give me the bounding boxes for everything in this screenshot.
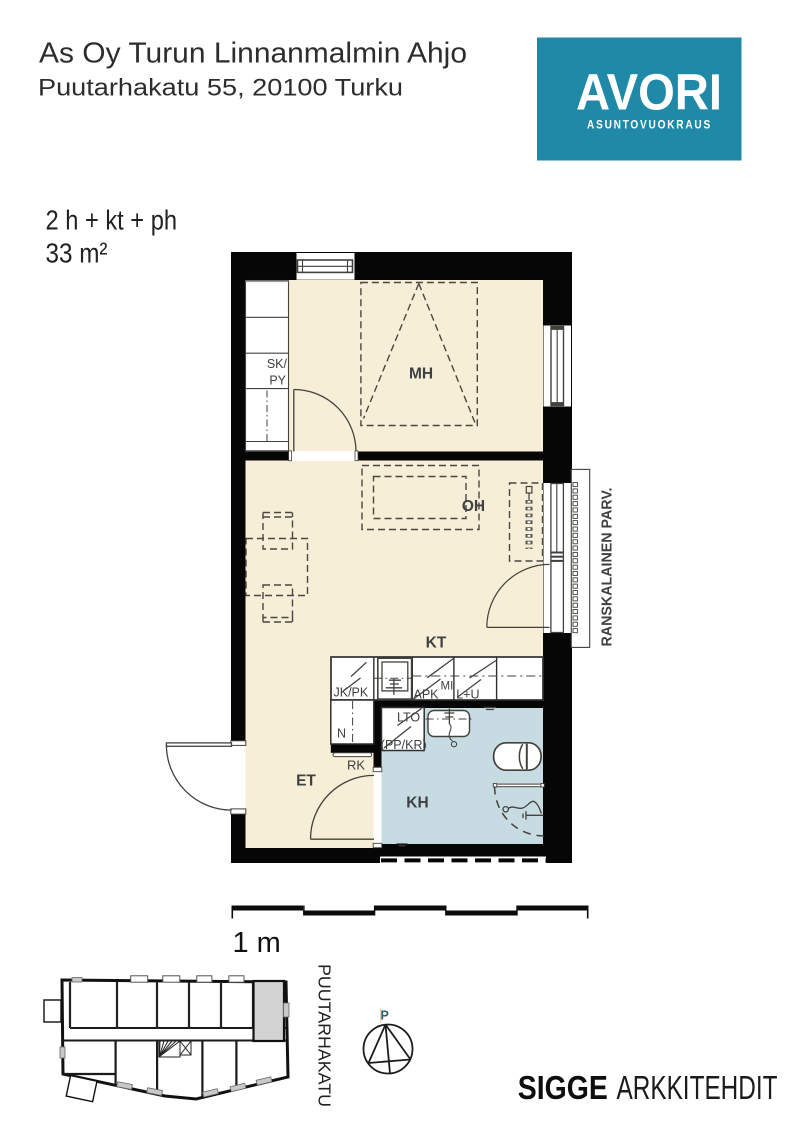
svg-text:P: P	[381, 1009, 389, 1023]
svg-text:PUUTARHAKATU: PUUTARHAKATU	[315, 964, 335, 1107]
svg-text:MI: MI	[441, 681, 454, 693]
svg-text:KH: KH	[406, 795, 428, 812]
svg-text:ET: ET	[296, 773, 316, 790]
svg-text:L+U: L+U	[456, 687, 479, 701]
svg-text:SK/: SK/	[267, 357, 288, 371]
svg-text:LTO: LTO	[397, 711, 420, 725]
svg-text:ARKKITEHDIT: ARKKITEHDIT	[617, 1069, 778, 1106]
svg-text:JK/PK: JK/PK	[334, 686, 369, 700]
svg-text:APK: APK	[414, 687, 440, 701]
svg-text:RANSKALAINEN PARV.: RANSKALAINEN PARV.	[599, 488, 616, 647]
svg-text:RK: RK	[347, 758, 365, 773]
svg-text:33 m²: 33 m²	[46, 237, 108, 268]
svg-text:(PP/KR): (PP/KR)	[381, 738, 427, 752]
svg-text:2 h + kt + ph: 2 h + kt + ph	[46, 205, 178, 236]
svg-text:As Oy Turun Linnanmalmin Ahjo: As Oy Turun Linnanmalmin Ahjo	[39, 38, 467, 70]
svg-text:OH: OH	[462, 498, 485, 515]
svg-text:N: N	[337, 727, 346, 741]
svg-text:Puutarhakatu 55, 20100 Turku: Puutarhakatu 55, 20100 Turku	[38, 75, 403, 102]
svg-text:KT: KT	[426, 635, 447, 652]
svg-text:SIGGE: SIGGE	[518, 1069, 608, 1106]
svg-text:MH: MH	[409, 366, 433, 383]
svg-text:1 m: 1 m	[233, 927, 281, 959]
svg-text:AVORI: AVORI	[576, 64, 722, 121]
svg-text:ASUNTOVUOKRAUS: ASUNTOVUOKRAUS	[587, 120, 712, 132]
svg-text:PY: PY	[269, 374, 286, 388]
